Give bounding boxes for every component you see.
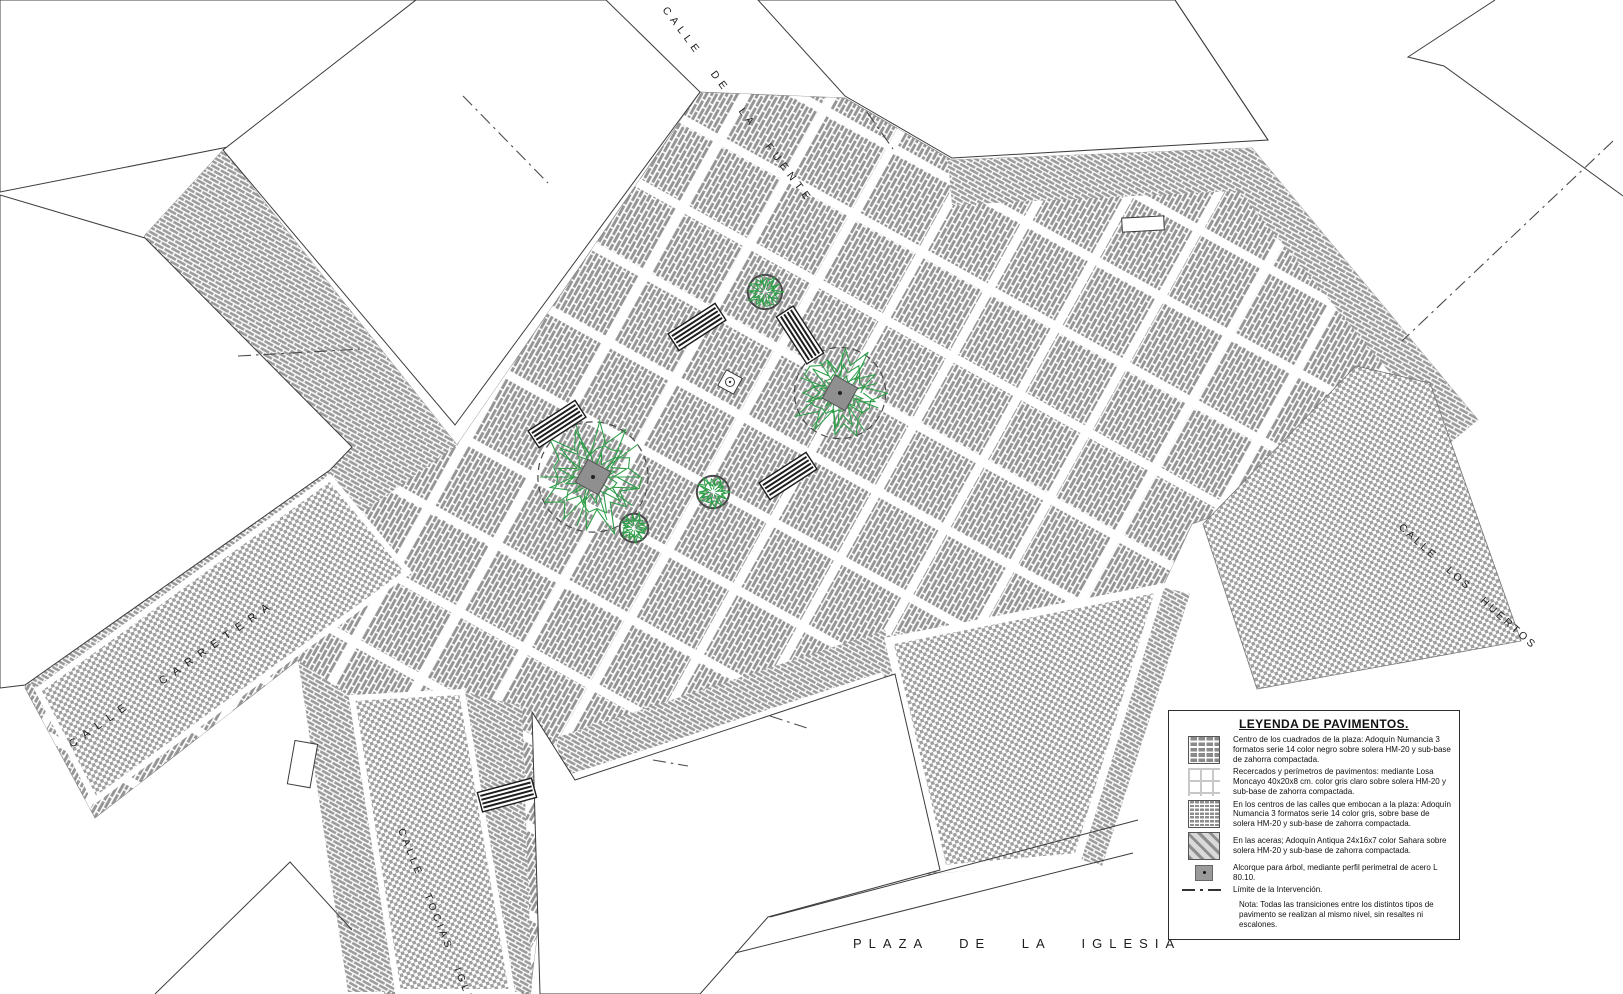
intervention-limit-line bbox=[1402, 141, 1613, 341]
swatch-acera-hatch bbox=[1188, 832, 1220, 860]
legend-item: Límite de la Intervención. bbox=[1175, 885, 1451, 895]
doorstep bbox=[287, 740, 317, 787]
building-outline bbox=[1408, 0, 1623, 196]
legend-item: Centro de los cuadrados de la plaza: Ado… bbox=[1175, 735, 1451, 764]
site-plan-stage: CALLE DE LA FUENTE CALLE CARRETERA CALLE… bbox=[0, 0, 1623, 994]
legend-item: En los centros de las calles que embocan… bbox=[1175, 800, 1451, 829]
plaza-name-label: PLAZA DE LA IGLESIA bbox=[853, 936, 1181, 951]
legend-item: En las aceras; Adoquín Antiqua 24x16x7 c… bbox=[1175, 832, 1451, 860]
legend-item: Alcorque para árbol, mediante perfil per… bbox=[1175, 863, 1451, 883]
legend-title: LEYENDA DE PAVIMENTOS. bbox=[1239, 717, 1451, 731]
swatch-limit-line bbox=[1182, 889, 1226, 891]
swatch-plaza-brick bbox=[1188, 736, 1220, 764]
building-outline bbox=[155, 862, 352, 994]
pavement-legend: LEYENDA DE PAVIMENTOS. Centro de los cua… bbox=[1168, 710, 1460, 940]
swatch-alcorque bbox=[1195, 865, 1213, 881]
swatch-street-brick bbox=[1188, 800, 1220, 828]
doorstep bbox=[1122, 216, 1165, 232]
legend-item: Recercados y perímetros de pavimentos: m… bbox=[1175, 767, 1451, 796]
legend-note: Nota: Todas las transiciones entre los d… bbox=[1239, 900, 1451, 930]
swatch-losa-grid bbox=[1188, 768, 1220, 796]
